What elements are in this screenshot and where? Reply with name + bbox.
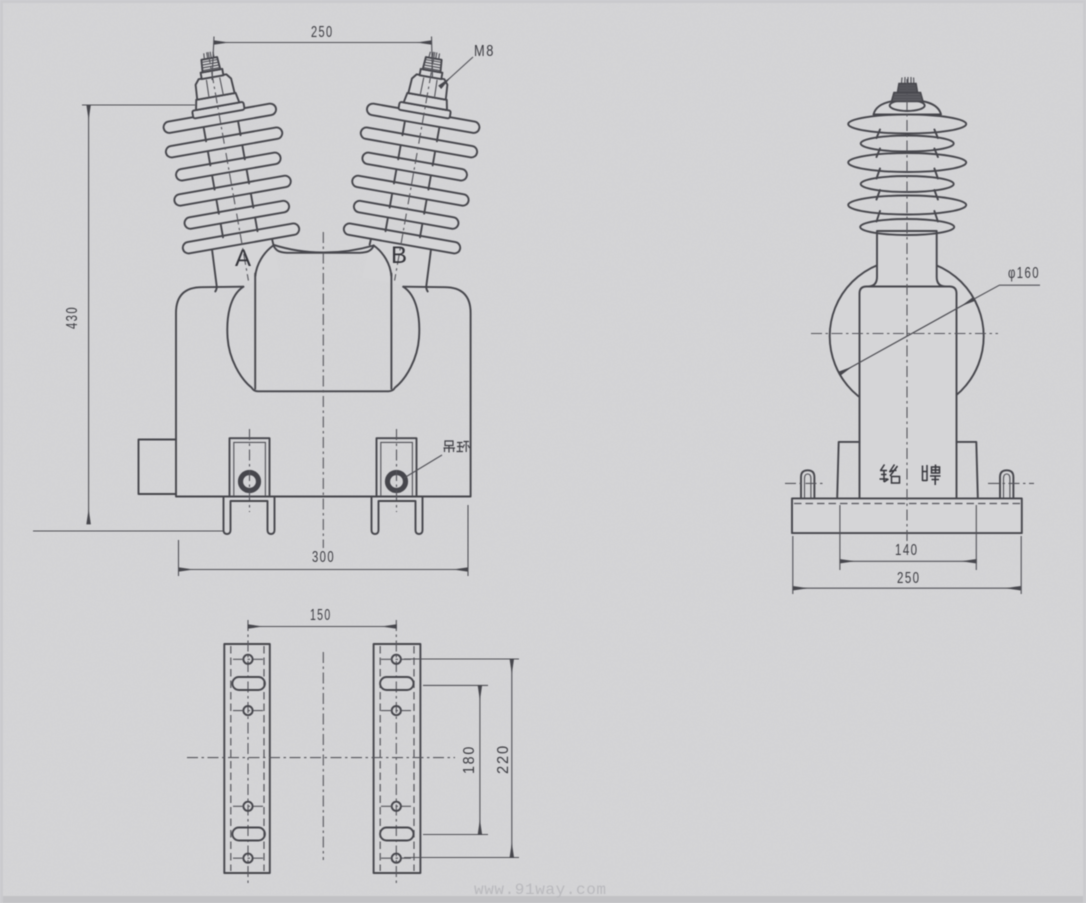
svg-text:250: 250	[897, 570, 921, 587]
svg-text:φ160: φ160	[1008, 265, 1040, 282]
svg-text:300: 300	[312, 549, 335, 566]
svg-text:220: 220	[495, 744, 512, 774]
svg-text:A: A	[235, 245, 251, 272]
svg-text:180: 180	[461, 745, 478, 774]
svg-text:250: 250	[311, 24, 334, 41]
svg-text:140: 140	[895, 542, 919, 559]
svg-text:B: B	[391, 242, 407, 269]
svg-text:430: 430	[64, 306, 81, 329]
svg-text:150: 150	[310, 607, 332, 624]
svg-text:www.91way.com: www.91way.com	[474, 881, 607, 899]
svg-text:M8: M8	[474, 43, 495, 60]
